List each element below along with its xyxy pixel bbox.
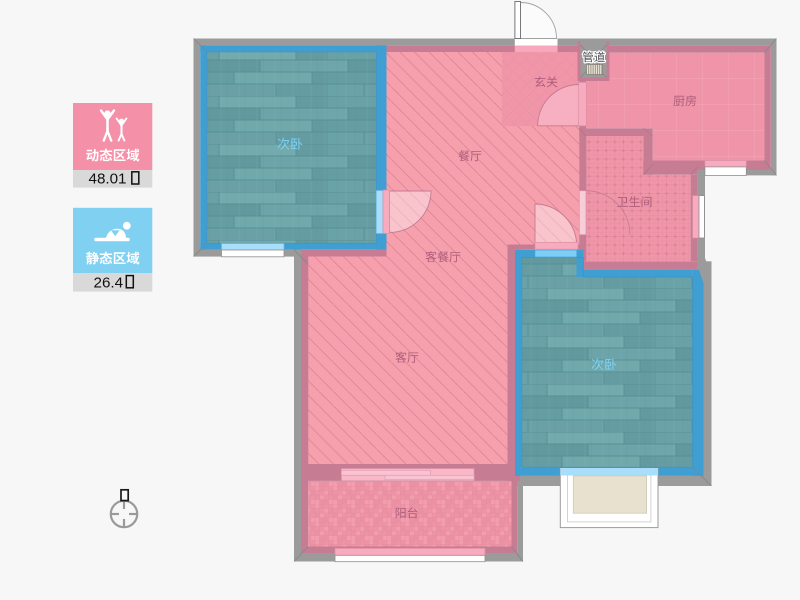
svg-text:26.4: 26.4 — [94, 275, 124, 292]
svg-text:48.01: 48.01 — [89, 171, 127, 188]
